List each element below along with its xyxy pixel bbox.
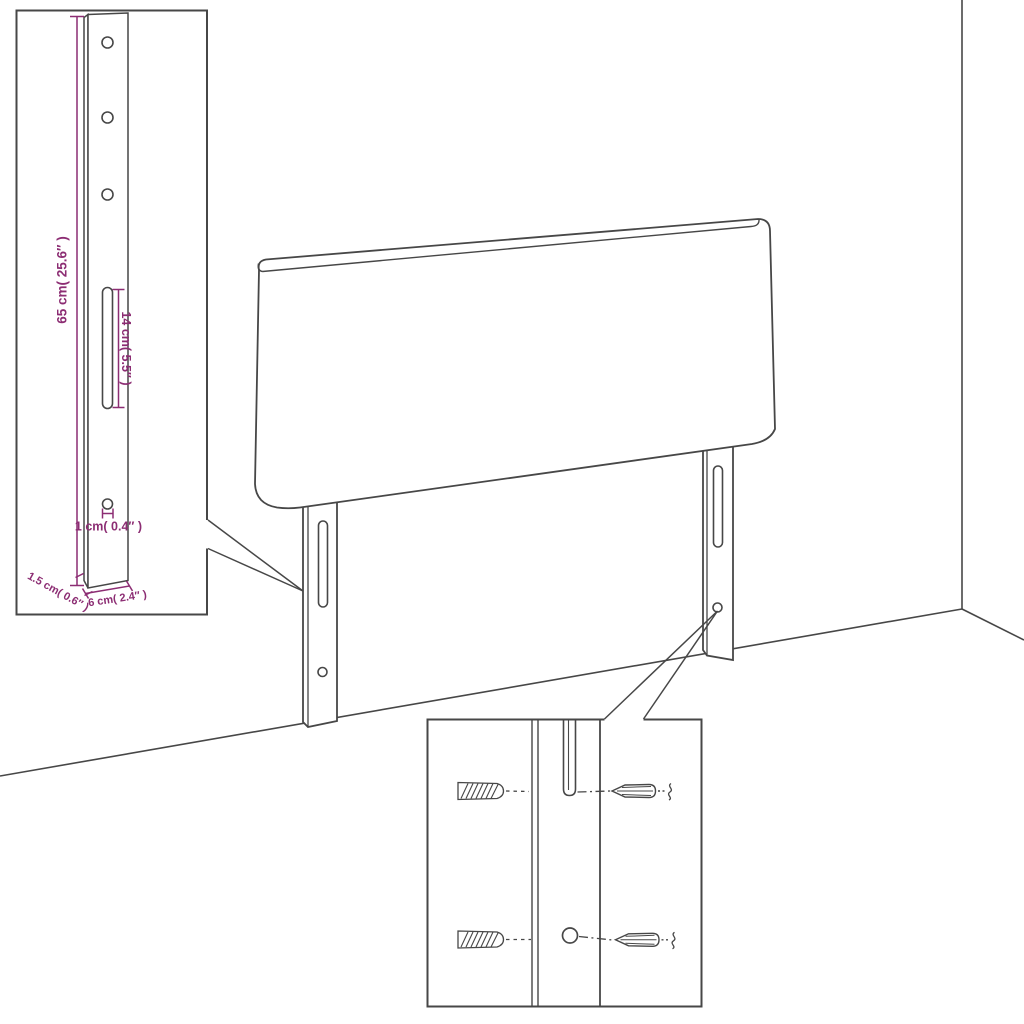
right-callout-line-upper bbox=[605, 611, 718, 719]
hole-diameter-label: 1 cm( 0.4″ ) bbox=[75, 520, 142, 534]
bracket-front-face bbox=[88, 13, 128, 588]
fixing-detail-inset-box bbox=[428, 720, 702, 1007]
right-callout-line-lower bbox=[644, 611, 718, 719]
right-leg bbox=[703, 446, 733, 660]
slot-length-label: 14 cm( 5.5″ ) bbox=[119, 311, 133, 385]
headboard-panel bbox=[255, 219, 775, 508]
leg-dimension-inset: 65 cm( 25.6″ ) 14 cm( 5.5″ ) 1 cm( 0.4″ … bbox=[17, 11, 208, 615]
leg-height-label: 65 cm( 25.6″ ) bbox=[55, 236, 70, 324]
left-leg bbox=[303, 500, 337, 727]
left-callout-lines bbox=[208, 520, 303, 591]
fixing-detail-inset bbox=[428, 611, 718, 1007]
headboard-front-face bbox=[255, 219, 775, 508]
floor-line-right bbox=[962, 609, 1024, 640]
assembly-diagram: 65 cm( 25.6″ ) 14 cm( 5.5″ ) 1 cm( 0.4″ … bbox=[0, 0, 1024, 1024]
